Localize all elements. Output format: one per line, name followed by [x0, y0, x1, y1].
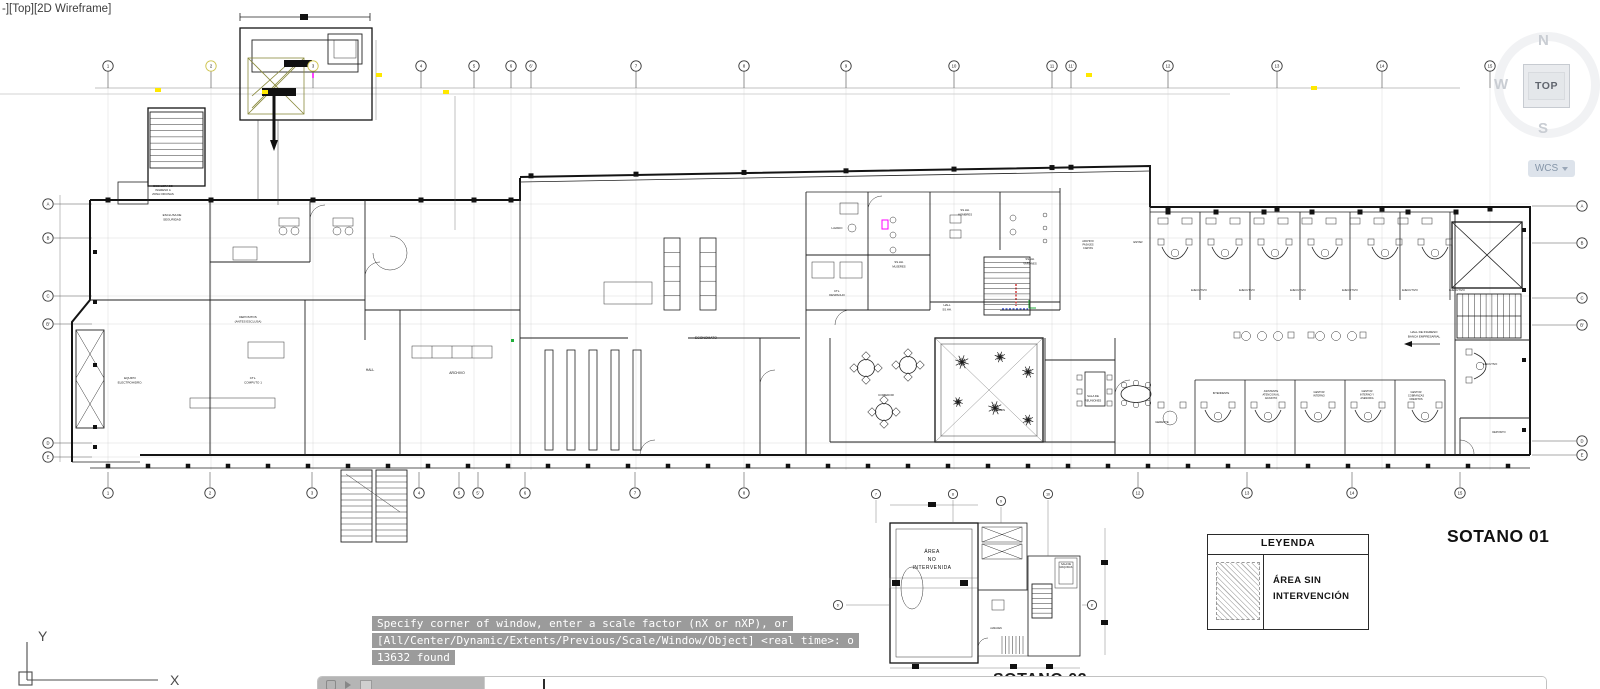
command-bar-tools[interactable] [318, 677, 484, 689]
svg-text:NO: NO [928, 557, 937, 563]
command-history: Specify corner of window, enter a scale … [372, 616, 859, 665]
svg-text:EJECUTIVO: EJECUTIVO [1449, 288, 1466, 292]
svg-text:6': 6' [529, 64, 532, 69]
viewcube[interactable]: N W S TOP [1492, 26, 1600, 156]
svg-text:ECONOMATO: ECONOMATO [695, 336, 717, 340]
svg-text:EJECUTIVO: EJECUTIVO [1290, 288, 1307, 292]
svg-text:(ANTES ESCLUSA): (ANTES ESCLUSA) [235, 320, 262, 324]
command-input[interactable] [484, 677, 1546, 689]
svg-text:7: 7 [875, 493, 877, 497]
text-cursor [543, 679, 545, 689]
svg-text:12: 12 [1136, 491, 1141, 496]
svg-text:11': 11' [1068, 64, 1073, 69]
svg-text:ASESORIA: ASESORIA [1360, 396, 1374, 400]
svg-text:D: D [46, 441, 49, 446]
svg-text:12: 12 [1166, 64, 1171, 69]
svg-text:15: 15 [1458, 491, 1463, 496]
viewport-controls[interactable]: -][Top][2D Wireframe] [2, 3, 111, 15]
reference-lines [0, 88, 1460, 462]
svg-text:ÁREA: ÁREA [924, 548, 940, 555]
svg-text:ESTAR: ESTAR [1133, 240, 1142, 244]
svg-text:INTERNO: INTERNO [1313, 394, 1325, 398]
svg-text:D: D [1580, 439, 1583, 444]
svg-text:13: 13 [1275, 64, 1280, 69]
wcs-menu[interactable]: WCS [1528, 160, 1575, 177]
svg-text:10: 10 [952, 64, 957, 69]
svg-text:EJECUTIVO: EJECUTIVO [1402, 288, 1419, 292]
svg-text:11: 11 [1050, 64, 1055, 69]
svg-text:8: 8 [952, 493, 954, 497]
viewcube-top-face[interactable]: TOP [1523, 64, 1570, 108]
svg-text:GESTOR: GESTOR [1411, 390, 1422, 394]
ucs-y-label: Y [38, 628, 48, 644]
svg-text:LAVADO: LAVADO [832, 226, 844, 230]
svg-text:SEGURIDAD: SEGURIDAD [163, 218, 182, 222]
svg-text:C: C [46, 294, 49, 299]
legend-header: LEYENDA [1208, 535, 1368, 555]
legend-item-label: ÁREA SIN INTERVENCIÓN [1273, 573, 1349, 605]
svg-text:CREDITOS: CREDITOS [1409, 397, 1423, 401]
svg-text:EJECUTIVO: EJECUTIVO [1239, 288, 1256, 292]
highlight-marks [155, 73, 1317, 342]
svg-text:13: 13 [1245, 491, 1250, 496]
viewcube-west[interactable]: W [1494, 76, 1508, 93]
drawing-canvas[interactable]: -][Top][2D Wireframe] [0, 0, 1600, 689]
legend: LEYENDA ÁREA SIN INTERVENCIÓN [1207, 534, 1369, 630]
svg-text:INTENDENTE: INTENDENTE [1213, 391, 1230, 395]
svg-text:B: B [1581, 241, 1584, 246]
svg-text:COMEDOR: COMEDOR [878, 393, 895, 397]
svg-text:ELECTROHIDRO.: ELECTROHIDRO. [118, 381, 143, 385]
svg-text:ARCHIVO: ARCHIVO [449, 371, 465, 375]
svg-text:CARTAS: CARTAS [1083, 247, 1093, 250]
svg-text:MAQUINAS: MAQUINAS [1060, 566, 1073, 569]
grid-lines [54, 71, 1576, 487]
svg-text:B: B [47, 236, 50, 241]
svg-text:DESPACHO: DESPACHO [829, 293, 845, 297]
svg-text:ASISTENTE: ASISTENTE [1264, 389, 1279, 393]
svg-text:BANCA EMPRESARIAL: BANCA EMPRESARIAL [1408, 335, 1441, 339]
svg-text:COMPUTO 1: COMPUTO 1 [244, 381, 262, 385]
svg-text:14: 14 [1380, 64, 1385, 69]
svg-text:ADJUNTO: ADJUNTO [1265, 396, 1277, 400]
svg-text:EJECUTIVO: EJECUTIVO [1483, 362, 1498, 366]
svg-text:A: A [47, 202, 50, 207]
customize-icon[interactable] [326, 680, 336, 689]
ucs-icon[interactable]: Y X [0, 615, 220, 689]
command-history-line: [All/Center/Dynamic/Extents/Previous/Sca… [372, 633, 859, 648]
svg-text:MUJERES: MUJERES [892, 265, 905, 269]
svg-text:6': 6' [837, 604, 840, 608]
svg-text:SS.HH.: SS.HH. [894, 260, 904, 264]
command-prompt-icon [345, 681, 351, 689]
svg-text:DEPOSITOS: DEPOSITOS [239, 315, 256, 319]
svg-text:REUNIONES: REUNIONES [1085, 399, 1102, 403]
svg-text:HALL: HALL [944, 303, 951, 307]
svg-text:ALMACEN: ALMACEN [990, 627, 1002, 630]
svg-text:SS.HH.: SS.HH. [1025, 257, 1035, 261]
svg-text:JARDIN: JARDIN [995, 408, 1005, 412]
svg-text:SALA DE: SALA DE [1087, 394, 1099, 398]
svg-text:EJECUTIVO: EJECUTIVO [1342, 288, 1359, 292]
svg-text:EJECUTIVO: EJECUTIVO [1191, 288, 1208, 292]
svg-text:5': 5' [476, 491, 479, 496]
viewcube-top-label: TOP [1528, 72, 1565, 100]
svg-text:CTL.: CTL. [250, 376, 257, 380]
svg-text:GESTOR: GESTOR [1362, 389, 1373, 393]
recent-commands-icon[interactable] [360, 680, 372, 689]
svg-text:E: E [1581, 453, 1584, 458]
svg-text:ATENCION AL: ATENCION AL [1263, 393, 1281, 397]
command-history-line: 13632 found [372, 650, 455, 665]
svg-text:10: 10 [1046, 493, 1050, 497]
command-bar[interactable] [318, 677, 1546, 689]
ucs-x-label: X [170, 672, 180, 688]
svg-text:HOMBRES: HOMBRES [958, 213, 972, 217]
svg-text:8': 8' [1091, 604, 1094, 608]
svg-text:B': B' [1580, 323, 1584, 328]
svg-text:INTERNO Y: INTERNO Y [1360, 393, 1374, 397]
svg-text:DEPOSITO: DEPOSITO [1492, 430, 1505, 434]
svg-text:EQUIPO: EQUIPO [124, 376, 136, 380]
svg-text:HALL DE INGRESO: HALL DE INGRESO [1410, 330, 1438, 334]
viewcube-south[interactable]: S [1538, 120, 1548, 137]
chevron-down-icon [1562, 167, 1568, 171]
svg-text:E: E [47, 455, 50, 460]
svg-text:SS.HH.: SS.HH. [942, 308, 952, 312]
svg-text:VARONES: VARONES [1023, 262, 1037, 266]
legend-hatch-swatch [1216, 562, 1260, 620]
svg-text:ESCLUSA DE: ESCLUSA DE [163, 213, 182, 217]
svg-text:GESTOR: GESTOR [1314, 390, 1325, 394]
svg-text:C: C [1580, 296, 1583, 301]
svg-text:COBRANZAS: COBRANZAS [1408, 394, 1424, 398]
svg-text:SS.HH.: SS.HH. [960, 208, 970, 212]
svg-text:HALL: HALL [366, 368, 375, 372]
svg-text:GERENTE: GERENTE [1155, 420, 1169, 424]
svg-text:A: A [1581, 204, 1584, 209]
svg-text:9: 9 [1000, 500, 1002, 504]
svg-text:INTERVENIDA: INTERVENIDA [912, 565, 951, 571]
svg-text:ZONA OFICINAS: ZONA OFICINAS [152, 192, 174, 196]
viewcube-north[interactable]: N [1538, 32, 1549, 49]
svg-text:B': B' [46, 322, 50, 327]
command-history-line: Specify corner of window, enter a scale … [372, 616, 793, 631]
legend-divider [1263, 554, 1264, 629]
svg-text:14: 14 [1350, 491, 1355, 496]
plan-title-sotano-01: SOTANO 01 [1447, 526, 1549, 547]
wcs-label: WCS [1535, 163, 1558, 174]
